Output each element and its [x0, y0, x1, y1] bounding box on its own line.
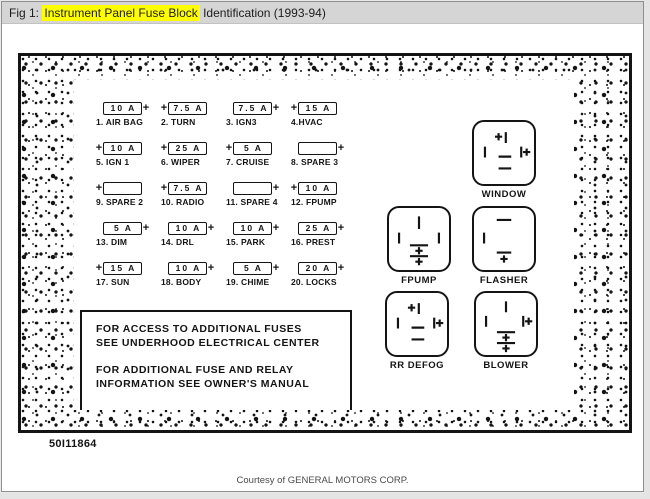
fuse-dim: 5 A+ 13. DIM [95, 221, 160, 247]
relay-label: FPUMP [383, 275, 455, 286]
fuse-label: 4.HVAC [291, 117, 355, 127]
fuse-label: 18. BODY [161, 277, 225, 287]
fuse-spare3: + 8. SPARE 3 [290, 141, 355, 167]
plus-mark: + [272, 102, 280, 115]
notes-box: FOR ACCESS TO ADDITIONAL FUSES SEE UNDER… [80, 310, 352, 410]
relay-pin-diagram [385, 291, 449, 357]
plus-mark: + [95, 142, 103, 155]
figure-title-suffix: Identification (1993-94) [200, 6, 326, 20]
plus-mark: + [290, 182, 298, 195]
plus-mark: + [272, 262, 280, 275]
note-line: SEE UNDERHOOD ELECTRICAL CENTER [96, 337, 350, 351]
plus-mark: + [337, 222, 345, 235]
fuse-row: 5 A+ 13. DIM 10 A+ 14. DRL 10 A+ 15. PAR… [95, 221, 355, 247]
fuse-box: 5 A [233, 262, 272, 275]
fuse-box [103, 182, 142, 195]
fuse-sun: +15 A 17. SUN [95, 261, 160, 287]
fuse-row: +15 A 17. SUN 10 A+ 18. BODY 5 A+ 19. CH… [95, 261, 355, 287]
plus-mark: + [272, 222, 280, 235]
relay-pin-diagram [472, 120, 536, 186]
fuse-label: 1. AIR BAG [96, 117, 160, 127]
window-edge-bottom [0, 493, 650, 499]
fuse-grid: 10 A+ 1. AIR BAG +7.5 A 2. TURN 7.5 A+ 3… [95, 101, 355, 301]
courtesy-note: Courtesy of GENERAL MOTORS CORP. [2, 475, 643, 486]
fuse-label: 11. SPARE 4 [226, 197, 290, 207]
fuse-box: 15 A [298, 102, 337, 115]
relay-pin-diagram [387, 206, 451, 272]
figure-title-bar: Fig 1: Instrument Panel Fuse Block Ident… [2, 2, 643, 24]
fuse-box: 10 A [168, 222, 207, 235]
fuse-label: 12. FPUMP [291, 197, 355, 207]
note-line: INFORMATION SEE OWNER'S MANUAL [96, 378, 350, 392]
fuse-box: 5 A [103, 222, 142, 235]
plus-mark: + [160, 102, 168, 115]
fuse-park: 10 A+ 15. PARK [225, 221, 290, 247]
fuse-locks: 20 A+ 20. LOCKS [290, 261, 355, 287]
fuse-row: 10 A+ 1. AIR BAG +7.5 A 2. TURN 7.5 A+ 3… [95, 101, 355, 127]
relay-pin-diagram [472, 206, 536, 272]
fuse-label: 8. SPARE 3 [291, 157, 355, 167]
relay-flasher: FLASHER [468, 206, 540, 286]
fuse-ign3: 7.5 A+ 3. IGN3 [225, 101, 290, 127]
fuse-body: 10 A+ 18. BODY [160, 261, 225, 287]
fuse-row: +10 A 5. IGN 1 +25 A 6. WIPER +5 A 7. CR… [95, 141, 355, 167]
fuse-label: 15. PARK [226, 237, 290, 247]
fuse-box: 10 A [168, 262, 207, 275]
fuse-label: 9. SPARE 2 [96, 197, 160, 207]
relay-label: RR DEFOG [381, 360, 453, 371]
fuse-label: 14. DRL [161, 237, 225, 247]
fuse-radio: +7.5 A 10. RADIO [160, 181, 225, 207]
fuse-box: 25 A [298, 222, 337, 235]
fuse-hvac: +15 A 4.HVAC [290, 101, 355, 127]
fuse-label: 16. PREST [291, 237, 355, 247]
fuse-airbag: 10 A+ 1. AIR BAG [95, 101, 160, 127]
plus-mark: + [142, 102, 150, 115]
fuse-label: 10. RADIO [161, 197, 225, 207]
relay-label: FLASHER [468, 275, 540, 286]
diagram-inner-area: 10 A+ 1. AIR BAG +7.5 A 2. TURN 7.5 A+ 3… [74, 80, 574, 410]
fuse-fpump: +10 A 12. FPUMP [290, 181, 355, 207]
fuse-box [298, 142, 337, 155]
relay-pin-diagram [474, 291, 538, 357]
relay-fpump: FPUMP [383, 206, 455, 286]
window-edge-right [644, 0, 650, 499]
fuse-box: 10 A [233, 222, 272, 235]
fuse-prest: 25 A+ 16. PREST [290, 221, 355, 247]
plus-mark: + [160, 182, 168, 195]
relay-pins-icon [390, 209, 448, 269]
fuse-label: 6. WIPER [161, 157, 225, 167]
fuse-label: 7. CRUISE [226, 157, 290, 167]
fuse-label: 13. DIM [96, 237, 160, 247]
fuse-label: 3. IGN3 [226, 117, 290, 127]
note-line: FOR ACCESS TO ADDITIONAL FUSES [96, 323, 350, 337]
plus-mark: + [95, 262, 103, 275]
plus-mark: + [95, 182, 103, 195]
fuse-ign1: +10 A 5. IGN 1 [95, 141, 160, 167]
figure-title-highlight: Instrument Panel Fuse Block [42, 5, 199, 21]
figure-page: Fig 1: Instrument Panel Fuse Block Ident… [1, 1, 644, 492]
fuse-label: 17. SUN [96, 277, 160, 287]
fuse-spare2: + 9. SPARE 2 [95, 181, 160, 207]
plus-mark: + [207, 262, 215, 275]
fuse-turn: +7.5 A 2. TURN [160, 101, 225, 127]
fuse-box: 10 A [103, 102, 142, 115]
relay-pins-icon [477, 294, 535, 354]
relay-window: WINDOW [468, 120, 540, 200]
fuse-spare4: + 11. SPARE 4 [225, 181, 290, 207]
plus-mark: + [160, 142, 168, 155]
figure-id: 50I11864 [49, 438, 97, 450]
fuse-chime: 5 A+ 19. CHIME [225, 261, 290, 287]
relay-rr-defog: RR DEFOG [381, 291, 453, 371]
fuse-box: 10 A [298, 182, 337, 195]
plus-mark: + [290, 102, 298, 115]
fuse-box: 20 A [298, 262, 337, 275]
relay-label: BLOWER [470, 360, 542, 371]
fuse-block-diagram: 10 A+ 1. AIR BAG +7.5 A 2. TURN 7.5 A+ 3… [18, 53, 632, 433]
fuse-label: 19. CHIME [226, 277, 290, 287]
relay-pins-icon [475, 123, 533, 183]
plus-mark: + [142, 222, 150, 235]
fuse-label: 5. IGN 1 [96, 157, 160, 167]
fuse-drl: 10 A+ 14. DRL [160, 221, 225, 247]
fuse-cruise: +5 A 7. CRUISE [225, 141, 290, 167]
fuse-box: 5 A [233, 142, 272, 155]
fuse-box: 15 A [103, 262, 142, 275]
fuse-row: + 9. SPARE 2 +7.5 A 10. RADIO + 11. SPAR… [95, 181, 355, 207]
relay-pins-icon [388, 294, 446, 354]
relay-pins-icon [475, 209, 533, 269]
fuse-box: 7.5 A [168, 102, 207, 115]
plus-mark: + [337, 262, 345, 275]
fuse-box [233, 182, 272, 195]
figure-title-prefix: Fig 1: [9, 6, 42, 20]
fuse-box: 25 A [168, 142, 207, 155]
fuse-box: 10 A [103, 142, 142, 155]
note-line: FOR ADDITIONAL FUSE AND RELAY [96, 364, 350, 378]
relay-label: WINDOW [468, 189, 540, 200]
relay-blower: BLOWER [470, 291, 542, 371]
fuse-box: 7.5 A [233, 102, 272, 115]
fuse-box: 7.5 A [168, 182, 207, 195]
plus-mark: + [337, 142, 345, 155]
fuse-label: 2. TURN [161, 117, 225, 127]
plus-mark: + [207, 222, 215, 235]
plus-mark: + [225, 142, 233, 155]
plus-mark: + [272, 182, 280, 195]
fuse-label: 20. LOCKS [291, 277, 355, 287]
fuse-wiper: +25 A 6. WIPER [160, 141, 225, 167]
